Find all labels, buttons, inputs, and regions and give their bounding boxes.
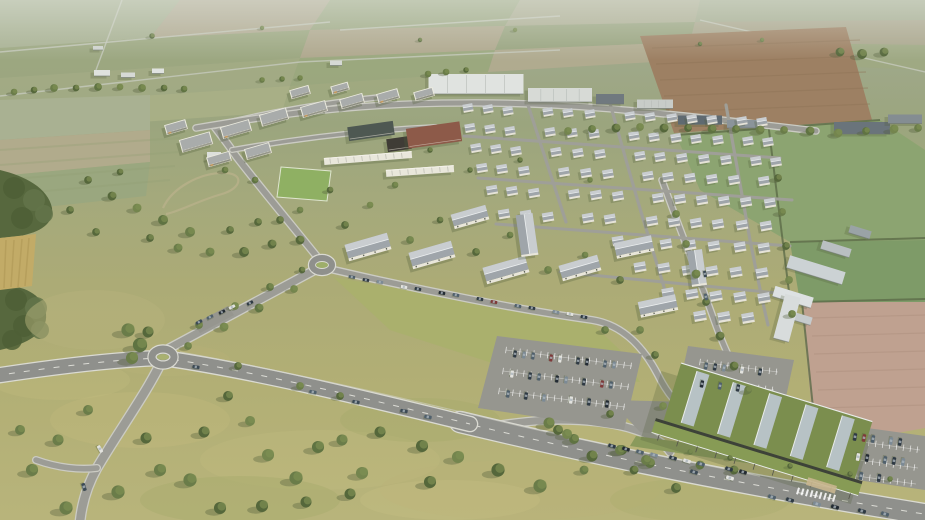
tree-highlight <box>684 240 689 245</box>
tree-highlight <box>68 206 73 211</box>
tree-highlight <box>135 204 141 210</box>
tree-highlight <box>186 342 191 347</box>
car-glass <box>379 281 381 284</box>
tree-highlight <box>474 248 479 253</box>
roundabout-island <box>157 354 169 360</box>
hall-roof <box>637 100 673 109</box>
tree-highlight <box>86 405 93 412</box>
tree-highlight <box>369 202 374 207</box>
tree-highlight <box>261 77 265 81</box>
tree-highlight <box>582 466 588 472</box>
tree-highlight <box>638 326 643 331</box>
tree-highlight <box>734 125 739 130</box>
tree-highlight <box>254 177 259 182</box>
car-glass <box>441 292 443 295</box>
car-glass <box>601 383 604 385</box>
tree-highlight <box>729 455 733 459</box>
tree-highlight <box>889 476 893 480</box>
forest-canopy <box>35 205 53 223</box>
car-glass <box>854 435 857 438</box>
industrial-hall <box>888 115 922 124</box>
tree-highlight <box>224 167 229 172</box>
car-glass <box>719 384 722 387</box>
tree-highlight <box>208 248 214 254</box>
car-glass <box>517 305 519 308</box>
tree-highlight <box>292 285 297 290</box>
tree-highlight <box>148 234 153 239</box>
tree-highlight <box>86 176 91 181</box>
tree-highlight <box>298 236 304 242</box>
industrial-hall <box>94 70 110 76</box>
tree-highlight <box>146 327 154 335</box>
forest-canopy <box>3 177 25 199</box>
tree-highlight <box>674 210 679 215</box>
tree-highlight <box>780 208 785 213</box>
tree-highlight <box>348 489 356 497</box>
tree-highlight <box>789 463 793 467</box>
tree-highlight <box>556 425 563 432</box>
tree-highlight <box>614 124 620 130</box>
tree-highlight <box>137 338 147 348</box>
tree-highlight <box>163 85 168 90</box>
car-glass <box>604 363 607 365</box>
car-glass <box>701 382 704 385</box>
tree-highlight <box>94 228 99 233</box>
tree-highlight <box>465 67 469 71</box>
tree-highlight <box>343 221 348 226</box>
tree-highlight <box>226 391 233 398</box>
car-glass <box>479 298 481 301</box>
forest-canopy <box>5 289 27 311</box>
tree-highlight <box>270 240 276 246</box>
forest-canopy <box>11 207 33 229</box>
tree-highlight <box>782 126 787 131</box>
car-glass <box>195 366 197 369</box>
car-glass <box>857 455 860 458</box>
car-glass <box>311 391 314 394</box>
car-glass <box>705 365 708 368</box>
tree-highlight <box>256 218 261 223</box>
car-glass <box>737 386 740 389</box>
tree-highlight <box>360 467 368 475</box>
industrial-hall <box>429 74 524 94</box>
tree-highlight <box>836 129 842 135</box>
hall-roof <box>888 115 922 124</box>
tree-highlight <box>33 87 38 92</box>
car-glass <box>759 370 762 373</box>
lawn <box>277 167 331 201</box>
car-glass <box>525 395 528 398</box>
car-glass <box>538 376 541 378</box>
car-glass <box>351 276 353 279</box>
tree-highlight <box>257 304 263 310</box>
tree-highlight <box>110 192 116 198</box>
car-glass <box>402 410 405 413</box>
forest-canopy <box>2 330 22 350</box>
tree-highlight <box>408 236 413 241</box>
tree-highlight <box>776 174 781 179</box>
tree-highlight <box>119 169 124 174</box>
tree-highlight <box>248 416 255 423</box>
tree-highlight <box>608 410 613 415</box>
car-glass <box>583 316 585 319</box>
car-glass <box>417 288 419 291</box>
car-glass <box>529 375 532 377</box>
tree-highlight <box>144 433 152 441</box>
car-glass <box>550 357 553 359</box>
tree-highlight <box>590 451 598 459</box>
tree-highlight <box>519 157 523 161</box>
tree-highlight <box>130 352 138 360</box>
tree-highlight <box>299 207 304 212</box>
car-glass <box>577 360 580 362</box>
tree-highlight <box>746 386 751 391</box>
hall-roof <box>152 69 164 74</box>
tree-highlight <box>638 123 643 128</box>
tree-highlight <box>565 429 572 436</box>
tree-highlight <box>202 427 210 435</box>
horizon-haze <box>0 0 925 60</box>
tree-highlight <box>808 127 814 133</box>
car-glass <box>583 381 586 383</box>
car-glass <box>531 307 533 310</box>
tree-highlight <box>236 362 241 367</box>
tree-highlight <box>653 351 658 356</box>
tree-highlight <box>589 177 593 181</box>
car-glass <box>741 369 744 372</box>
tree-highlight <box>456 451 464 459</box>
car-glass <box>559 358 562 360</box>
car-glass <box>570 399 573 402</box>
tree-highlight <box>495 464 504 473</box>
tree-highlight <box>304 497 312 505</box>
industrial-hall <box>596 94 624 104</box>
industrial-hall <box>330 61 342 66</box>
tree-highlight <box>718 332 724 338</box>
tree-highlight <box>584 252 589 257</box>
tree-highlight <box>784 242 789 247</box>
car-glass <box>588 401 591 404</box>
car-glass <box>507 393 510 396</box>
car-glass <box>523 354 526 356</box>
tree-highlight <box>13 89 18 94</box>
car-glass <box>893 459 896 462</box>
car-glass <box>543 397 546 400</box>
tree-highlight <box>63 502 72 511</box>
tree-highlight <box>161 215 168 222</box>
tree-highlight <box>188 227 195 234</box>
tree-highlight <box>445 69 450 74</box>
tree-highlight <box>299 75 303 79</box>
tree-highlight <box>176 244 182 250</box>
industrial-hall <box>121 73 135 78</box>
tree-highlight <box>115 486 124 495</box>
tree-highlight <box>338 392 343 397</box>
car-glass <box>569 313 571 316</box>
tree-highlight <box>298 382 303 387</box>
tree-highlight <box>537 480 546 489</box>
tree-highlight <box>266 449 274 457</box>
tree-highlight <box>30 464 38 472</box>
tree-highlight <box>758 126 764 132</box>
car-glass <box>610 384 613 386</box>
tree-highlight <box>278 216 283 221</box>
car-glass <box>863 436 866 439</box>
tree-highlight <box>662 124 668 130</box>
tree-highlight <box>572 434 579 441</box>
car-glass <box>902 460 905 463</box>
hall-roof <box>429 74 524 94</box>
haze-layer <box>0 0 925 60</box>
tree-highlight <box>329 187 334 192</box>
tree-highlight <box>420 440 428 448</box>
meadow-patch <box>360 480 540 520</box>
tree-highlight <box>260 500 268 508</box>
tree-highlight <box>56 435 64 443</box>
car-glass <box>723 367 726 370</box>
car-glass <box>403 286 405 289</box>
car-glass <box>555 311 557 314</box>
tree-highlight <box>222 323 228 329</box>
industrial-hall <box>528 88 592 102</box>
tree-highlight <box>316 441 324 449</box>
tree-highlight <box>674 483 681 490</box>
tree-highlight <box>710 125 716 131</box>
tree-highlight <box>694 270 700 276</box>
car-glass <box>884 458 887 461</box>
tree-highlight <box>916 124 921 129</box>
aerial-masterplan-render: Aerial 3D rendering of a suburban master… <box>0 0 925 520</box>
car-glass <box>606 403 609 406</box>
car-glass <box>365 279 367 282</box>
tree-highlight <box>864 127 869 132</box>
car-glass <box>455 294 457 297</box>
car-glass <box>890 439 893 442</box>
hall-roof <box>596 94 624 104</box>
car-glass <box>565 379 568 381</box>
roundabout-island <box>316 262 328 268</box>
tree-highlight <box>158 464 166 472</box>
hall-roof <box>330 61 342 66</box>
hall-roof <box>94 70 110 76</box>
car-glass <box>872 437 875 440</box>
hall-roof <box>121 73 135 78</box>
tree-highlight <box>140 84 145 89</box>
tree-highlight <box>427 71 432 76</box>
scene <box>0 0 925 520</box>
tree-highlight <box>590 125 595 130</box>
tree-highlight <box>790 310 795 315</box>
tree-highlight <box>787 276 792 281</box>
tree-highlight <box>469 167 473 171</box>
car-glass <box>532 355 535 357</box>
car-glass <box>511 373 514 375</box>
tree-highlight <box>546 266 551 271</box>
tree-highlight <box>892 125 898 131</box>
car-glass <box>426 416 429 419</box>
car-glass <box>714 366 717 369</box>
tree-highlight <box>187 474 196 483</box>
industrial-hall <box>152 69 164 74</box>
industrial-hall <box>637 100 673 109</box>
car-glass <box>556 378 559 380</box>
tree-highlight <box>566 127 571 132</box>
tree-highlight <box>689 449 693 453</box>
tree-highlight <box>849 471 853 475</box>
tree-highlight <box>119 84 124 89</box>
tree-highlight <box>340 435 348 443</box>
tree-highlight <box>218 502 226 510</box>
tree-highlight <box>242 247 249 254</box>
tree-highlight <box>429 147 433 151</box>
tree-highlight <box>686 124 691 129</box>
tree-highlight <box>75 85 80 90</box>
tree-highlight <box>378 427 386 435</box>
tree-highlight <box>394 182 399 187</box>
car-glass <box>878 476 881 479</box>
car-glass <box>613 364 616 366</box>
tree-highlight <box>96 83 101 88</box>
car-glass <box>493 301 495 304</box>
car-glass <box>354 401 357 404</box>
tree-highlight <box>661 402 666 407</box>
tree-highlight <box>547 418 555 426</box>
hall-roof <box>528 88 592 102</box>
tree-highlight <box>52 84 57 89</box>
tree-highlight <box>183 86 188 91</box>
tree-highlight <box>228 226 233 231</box>
tree-highlight <box>281 76 285 80</box>
tree-highlight <box>301 267 306 272</box>
car-glass <box>899 440 902 443</box>
car-glass <box>586 361 589 363</box>
tree-highlight <box>632 466 638 472</box>
car-glass <box>866 456 869 459</box>
tree-highlight <box>439 217 444 222</box>
tree-highlight <box>509 232 514 237</box>
tree-highlight <box>732 466 738 472</box>
car-glass <box>514 353 517 355</box>
tree-highlight <box>618 276 623 281</box>
tree-highlight <box>268 283 273 288</box>
tree-highlight <box>18 425 25 432</box>
tree-highlight <box>293 472 302 481</box>
car-glass <box>860 474 863 477</box>
tree-highlight <box>125 324 134 333</box>
tree-highlight <box>732 362 738 368</box>
tree-highlight <box>428 476 436 484</box>
tree-highlight <box>603 326 608 331</box>
